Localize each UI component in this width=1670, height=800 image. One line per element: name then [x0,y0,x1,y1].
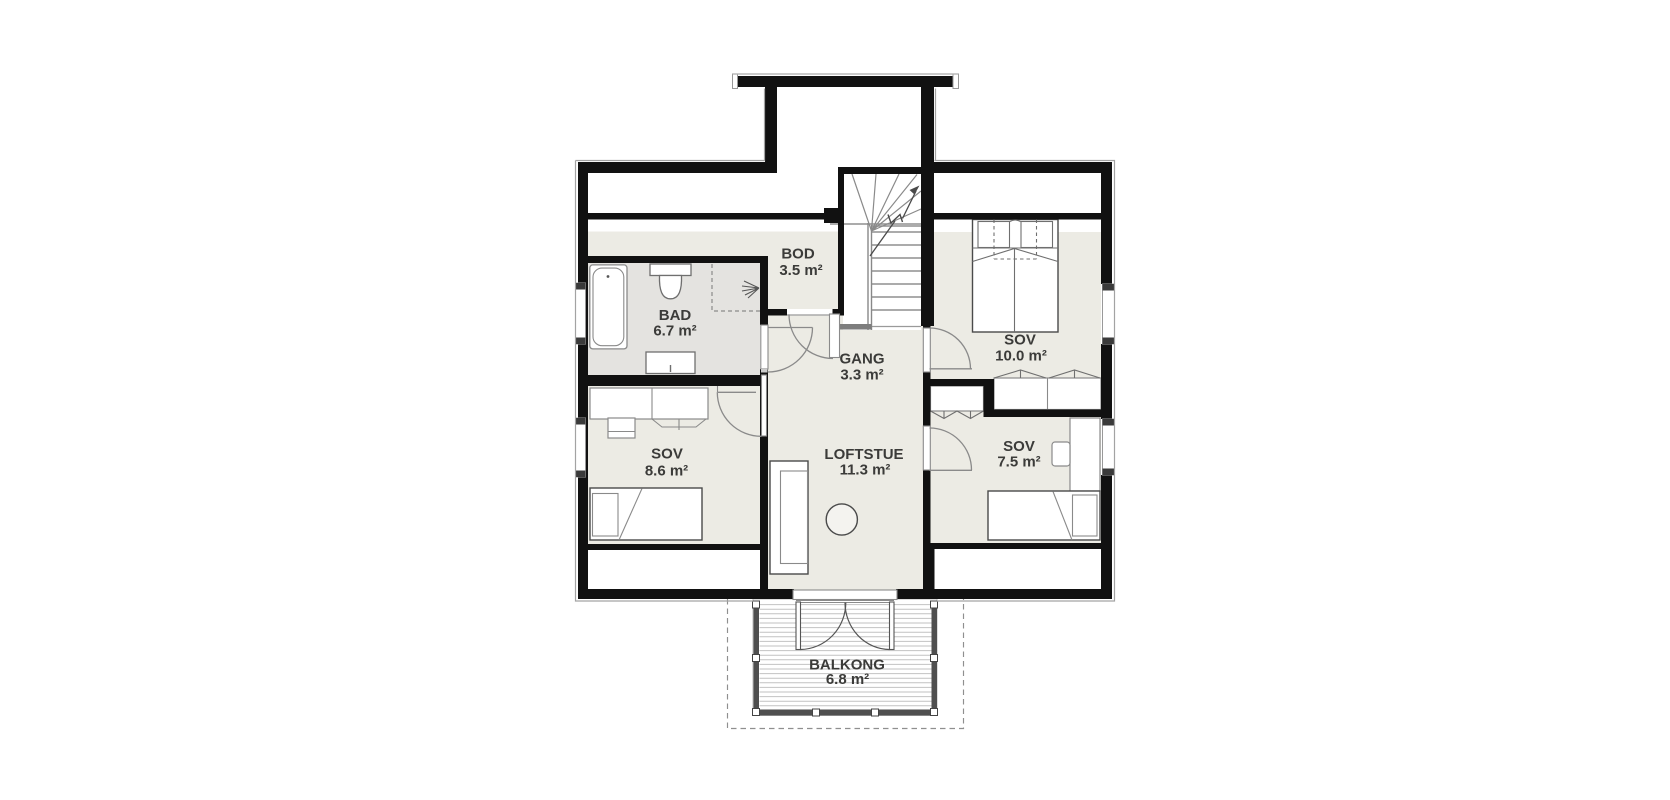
svg-text:SOV: SOV [1003,438,1035,455]
svg-text:BOD: BOD [781,245,815,262]
svg-text:6.8 m²: 6.8 m² [826,671,869,688]
svg-text:8.6 m²: 8.6 m² [645,462,688,479]
svg-text:BAD: BAD [659,307,692,324]
svg-text:11.3 m²: 11.3 m² [840,461,891,478]
svg-text:SOV: SOV [651,445,683,462]
svg-text:SOV: SOV [1004,331,1036,348]
svg-text:GANG: GANG [840,350,885,367]
svg-text:3.5 m²: 3.5 m² [779,262,822,279]
svg-text:10.0 m²: 10.0 m² [995,347,1047,364]
svg-text:LOFTSTUE: LOFTSTUE [824,446,903,463]
svg-text:6.7 m²: 6.7 m² [653,322,696,339]
svg-text:7.5 m²: 7.5 m² [997,454,1040,471]
svg-text:3.3 m²: 3.3 m² [840,366,883,383]
